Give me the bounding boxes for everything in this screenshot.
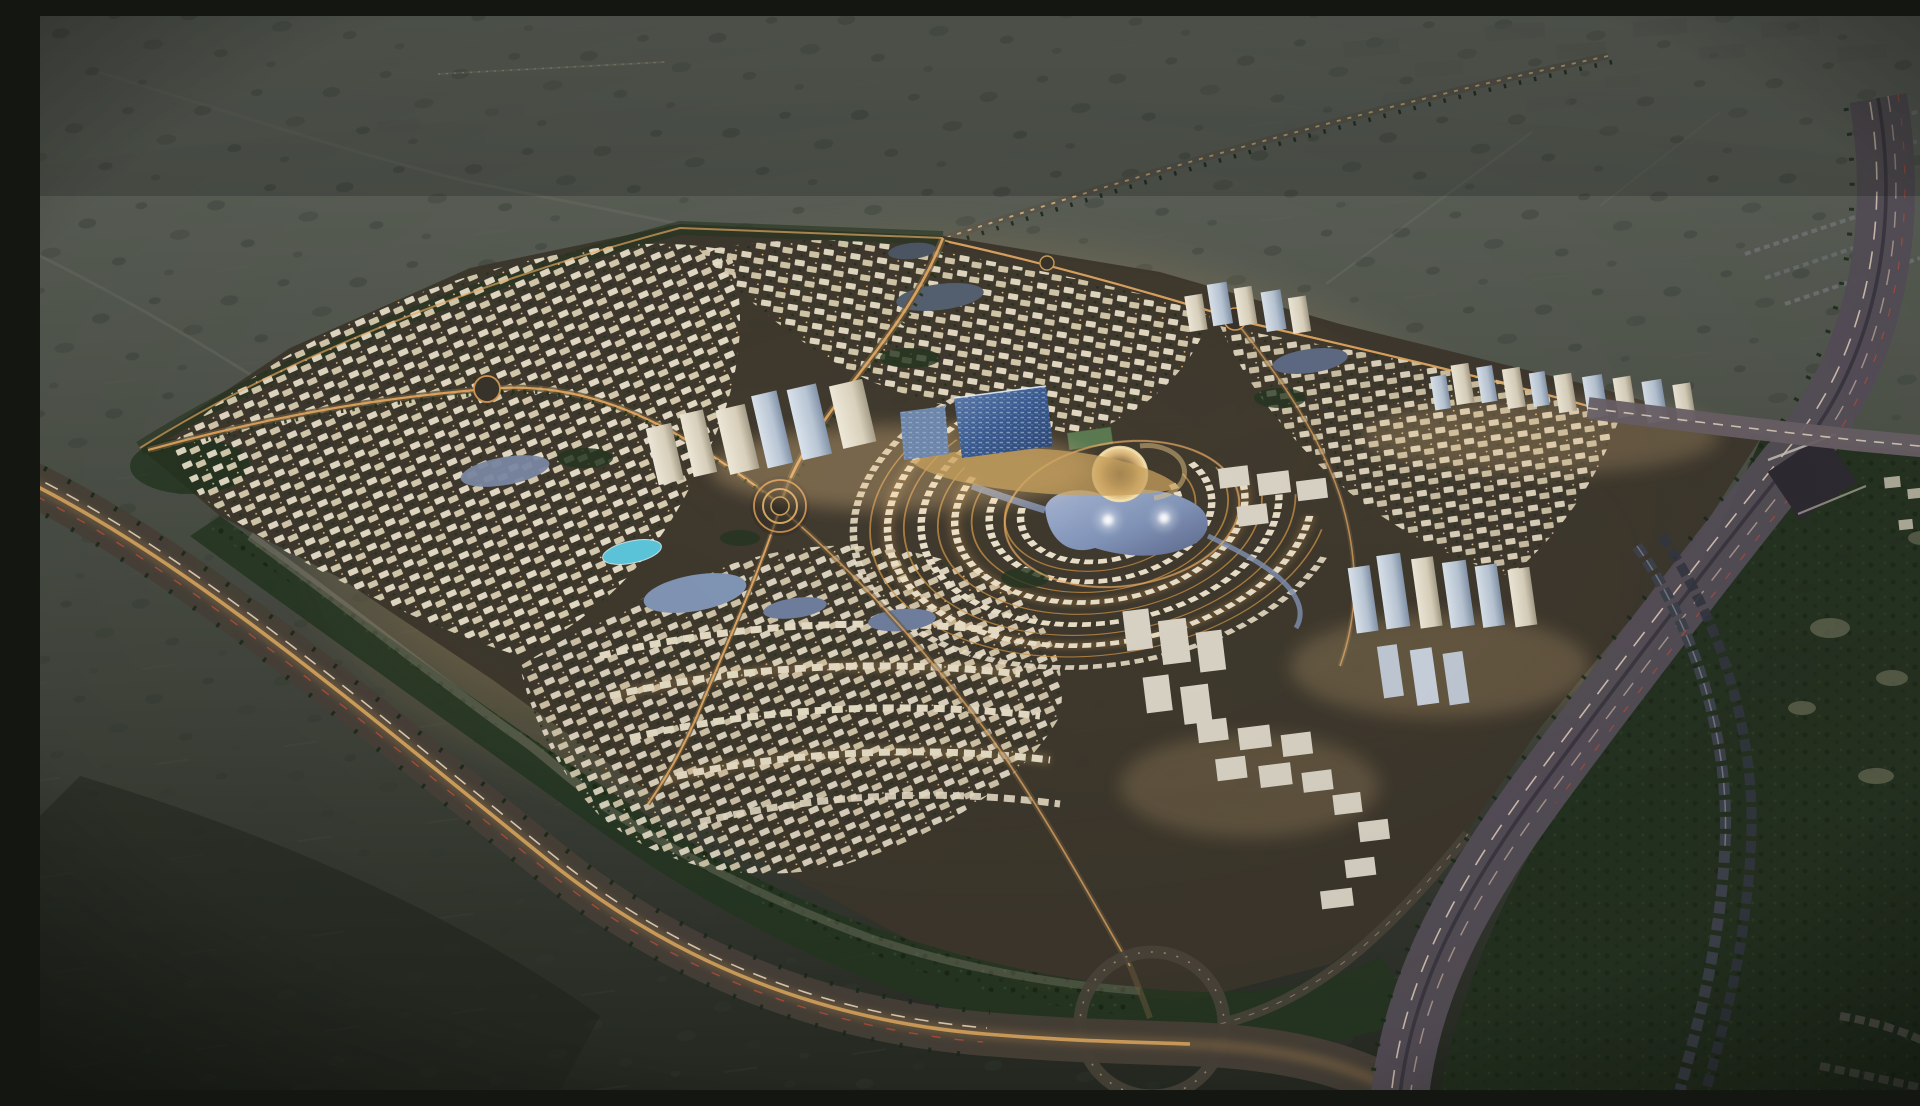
aerial-render (40, 16, 1920, 1090)
atmosphere (40, 16, 1920, 1090)
aerial-scene-svg (40, 16, 1920, 1090)
